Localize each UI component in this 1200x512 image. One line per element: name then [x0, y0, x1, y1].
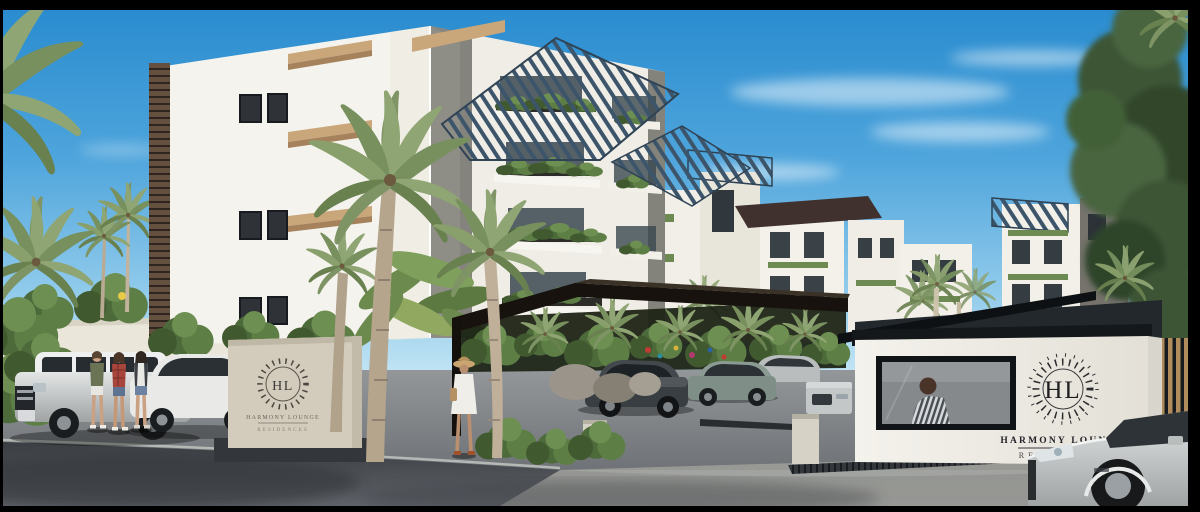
slat-column: [149, 63, 170, 346]
wall-monogram: HL: [272, 379, 294, 394]
frame-right: [1188, 0, 1200, 512]
barrier-pillar: [792, 414, 819, 464]
suv-badge: [1094, 468, 1109, 472]
frame-left: [0, 0, 3, 512]
silver-suv-at-gate: [806, 382, 852, 414]
frame-top: [0, 0, 1200, 10]
gatehouse-monogram: HL: [1044, 377, 1081, 404]
scene: HL HARMONY LOUNGE RESIDENCES: [0, 0, 1200, 512]
guard-window: [876, 356, 1016, 430]
suv-mirror: [1168, 436, 1183, 445]
handbag: [450, 388, 457, 401]
entrance-sign-wall: HL HARMONY LOUNGE RESIDENCES: [214, 336, 376, 462]
wall-sign-line2: RESIDENCES: [257, 427, 308, 433]
license-plate: [18, 410, 35, 421]
banana-flower: [118, 292, 126, 300]
wall-sign-line1: HARMONY LOUNGE: [246, 415, 320, 421]
frame-bottom: [0, 506, 1200, 512]
rendering-canvas: HL HARMONY LOUNGE RESIDENCES: [0, 0, 1200, 512]
